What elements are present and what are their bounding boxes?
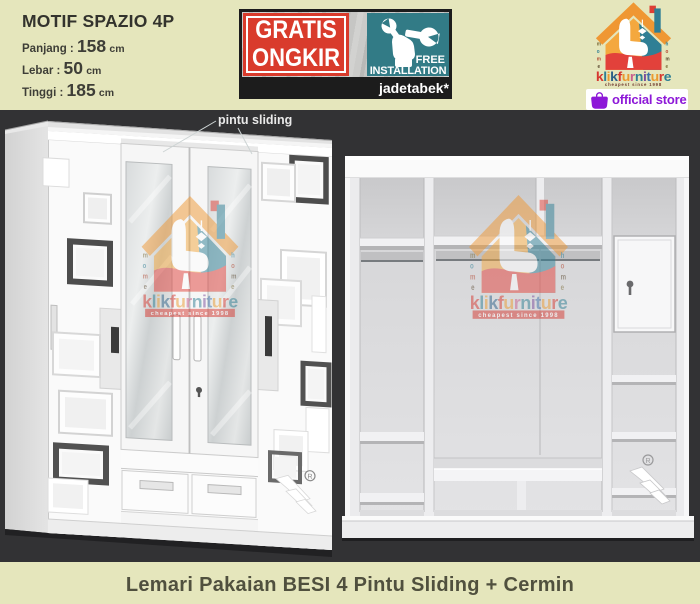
svg-text:R: R [645,458,650,465]
svg-text:R: R [307,474,312,481]
svg-text:pintu sliding: pintu sliding [218,113,292,127]
